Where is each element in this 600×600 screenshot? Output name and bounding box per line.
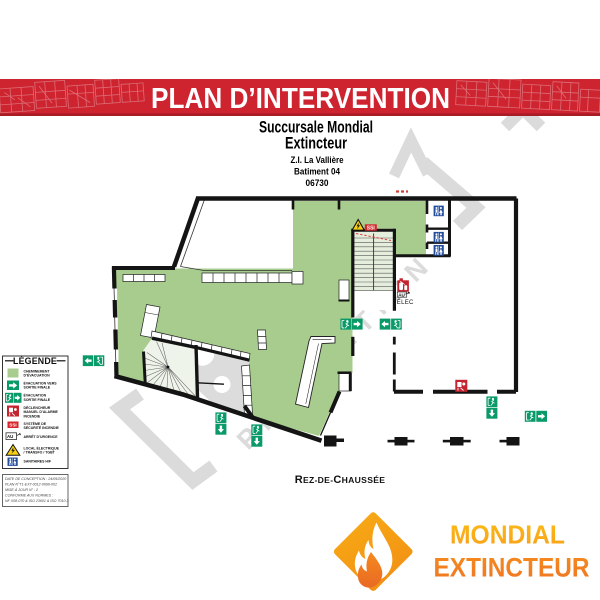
svg-text:Z.I. La Vallière: Z.I. La Vallière: [291, 155, 344, 165]
svg-text:LOCAL ÉLECTRIQUE: LOCAL ÉLECTRIQUE: [24, 445, 60, 450]
svg-text:DÉCLENCHEUR: DÉCLENCHEUR: [24, 405, 51, 410]
svg-text:ÉLEC: ÉLEC: [397, 299, 414, 306]
svg-text:D’ÉVACUATION: D’ÉVACUATION: [24, 373, 51, 378]
svg-text:SYSTÈME DE: SYSTÈME DE: [24, 421, 47, 426]
svg-text:CONFORME AUX NORMES :: CONFORME AUX NORMES :: [5, 494, 53, 498]
svg-text:DATE DE CONCEPTION : 24/05/202: DATE DE CONCEPTION : 24/05/2020: [5, 477, 66, 481]
svg-text:SORTIE FINALE: SORTIE FINALE: [24, 386, 51, 390]
svg-text:NF X08-070 & ISO 23601 & ISO 7: NF X08-070 & ISO 23601 & ISO 7010-3: [5, 499, 69, 503]
svg-text:MONDIAL: MONDIAL: [450, 520, 565, 550]
svg-text:ÉVACUATION: ÉVACUATION: [24, 393, 47, 398]
svg-text:LÉGENDE: LÉGENDE: [13, 356, 57, 366]
svg-text:AU: AU: [398, 292, 405, 297]
svg-text:MISE À JOUR N° : 2: MISE À JOUR N° : 2: [5, 488, 38, 492]
svg-text:06730: 06730: [306, 178, 329, 188]
svg-text:SÉCURITÉ INCENDIE: SÉCURITÉ INCENDIE: [24, 425, 60, 430]
svg-text:INCENDIE: INCENDIE: [24, 414, 41, 418]
svg-text:PLAN N°T1-EXT-0012-0696-002: PLAN N°T1-EXT-0012-0696-002: [5, 483, 57, 487]
svg-text:SSI: SSI: [367, 226, 376, 232]
svg-text:Batiment 04: Batiment 04: [294, 167, 340, 177]
svg-text:SORTIE FINALE: SORTIE FINALE: [24, 398, 51, 402]
svg-text:SSI: SSI: [9, 423, 16, 428]
svg-text:Extincteur: Extincteur: [285, 135, 347, 153]
svg-text:SANITAIRES H/F: SANITAIRES H/F: [24, 460, 52, 464]
svg-text:EXTINCTEUR: EXTINCTEUR: [434, 553, 590, 583]
svg-text:/ TRANSFO / TGBT: / TRANSFO / TGBT: [24, 451, 56, 455]
svg-text:REZ-DE-CHAUSSÉE: REZ-DE-CHAUSSÉE: [295, 474, 386, 486]
svg-text:AU: AU: [7, 434, 13, 439]
svg-text:PLAN D’INTERVENTION: PLAN D’INTERVENTION: [151, 83, 450, 115]
svg-text:ÉVACUATION VERS: ÉVACUATION VERS: [24, 380, 58, 385]
svg-text:ARRÊT D’URGENCE: ARRÊT D’URGENCE: [24, 434, 59, 439]
